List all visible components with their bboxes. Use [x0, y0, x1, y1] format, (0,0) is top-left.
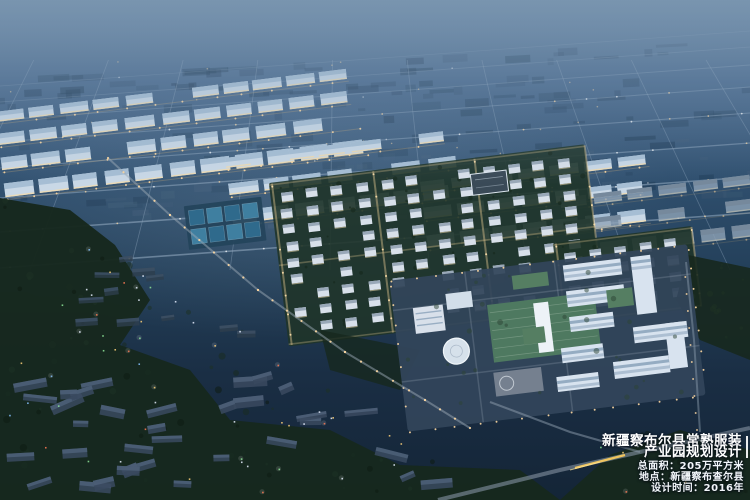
aerial-night-render: [0, 0, 750, 500]
project-stats: 总面积：205万平方米 地点：新疆察布查尔县 设计时间：2016年: [602, 461, 748, 494]
project-caption: 新疆察布尔县常熟服装 产业园规划设计 总面积：205万平方米 地点：新疆察布查尔…: [602, 436, 748, 494]
stat-design-year: 设计时间：2016年: [602, 483, 744, 494]
atmospheric-haze: [0, 0, 750, 185]
project-title: 新疆察布尔县常熟服装 产业园规划设计: [602, 436, 748, 458]
masterplan-render-image: 新疆察布尔县常熟服装 产业园规划设计 总面积：205万平方米 地点：新疆察布查尔…: [0, 0, 750, 500]
stat-total-area: 总面积：205万平方米: [602, 461, 744, 472]
stat-location: 地点：新疆察布查尔县: [602, 472, 744, 483]
